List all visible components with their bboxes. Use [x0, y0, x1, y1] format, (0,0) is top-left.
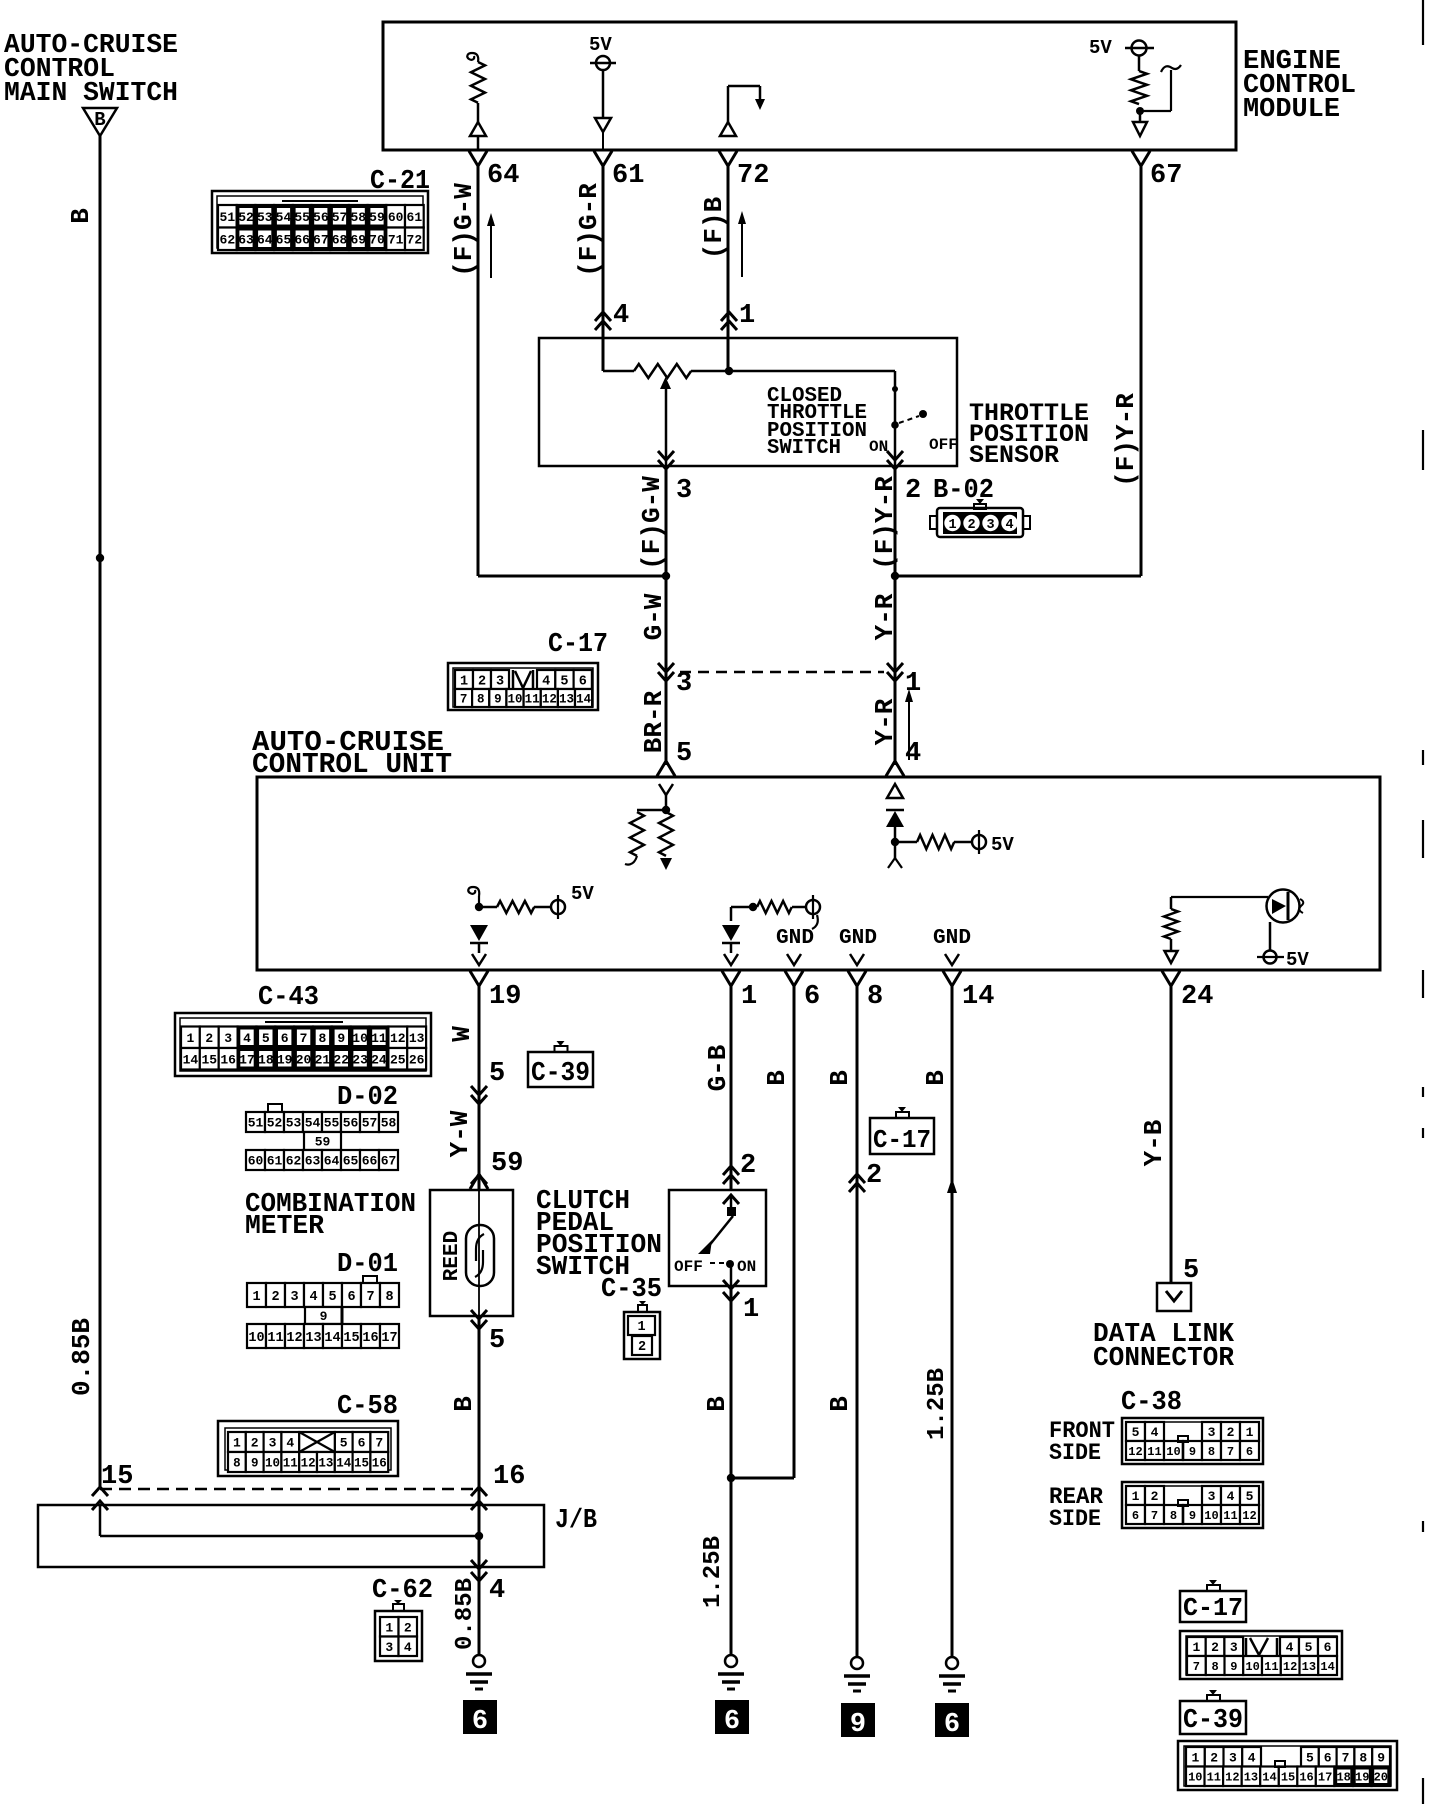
- svg-text:13: 13: [305, 1331, 321, 1346]
- svg-text:59: 59: [491, 1149, 523, 1179]
- svg-text:B: B: [762, 1070, 792, 1086]
- svg-text:11: 11: [267, 1331, 283, 1346]
- svg-text:23: 23: [352, 1052, 368, 1067]
- svg-text:72: 72: [737, 161, 769, 191]
- svg-text:6: 6: [1132, 1509, 1139, 1523]
- svg-text:9: 9: [320, 1309, 328, 1324]
- svg-text:5: 5: [1246, 1489, 1254, 1504]
- svg-text:1: 1: [252, 1290, 260, 1305]
- svg-text:C-17: C-17: [548, 630, 608, 660]
- svg-text:2: 2: [478, 674, 486, 689]
- svg-text:65: 65: [276, 232, 292, 247]
- svg-text:12: 12: [542, 693, 557, 707]
- svg-text:1.25B: 1.25B: [700, 1536, 727, 1608]
- svg-text:1: 1: [743, 1295, 759, 1325]
- svg-text:54: 54: [305, 1116, 321, 1131]
- svg-text:6: 6: [1246, 1445, 1253, 1459]
- svg-text:21: 21: [315, 1052, 331, 1067]
- svg-text:C-39: C-39: [1183, 1706, 1243, 1736]
- svg-text:1.25B: 1.25B: [924, 1368, 951, 1440]
- svg-text:7: 7: [300, 1031, 308, 1046]
- svg-text:58: 58: [350, 210, 366, 225]
- svg-text:65: 65: [343, 1154, 359, 1169]
- svg-text:61: 61: [267, 1154, 283, 1169]
- svg-text:6: 6: [358, 1436, 366, 1451]
- svg-text:2: 2: [1211, 1640, 1219, 1655]
- svg-text:B: B: [94, 109, 105, 131]
- svg-text:63: 63: [238, 232, 254, 247]
- svg-text:7: 7: [1342, 1750, 1350, 1765]
- svg-text:C-62: C-62: [372, 1576, 433, 1606]
- svg-text:13: 13: [409, 1031, 425, 1046]
- svg-text:3: 3: [224, 1031, 232, 1046]
- svg-text:J/B: J/B: [555, 1506, 597, 1536]
- svg-text:3: 3: [290, 1290, 298, 1305]
- svg-text:3: 3: [676, 669, 692, 699]
- svg-text:4: 4: [905, 739, 921, 769]
- svg-text:5: 5: [1306, 1750, 1314, 1765]
- svg-text:Y-B: Y-B: [1139, 1119, 1169, 1166]
- svg-text:1: 1: [233, 1436, 241, 1451]
- svg-text:ON: ON: [737, 1258, 756, 1276]
- svg-text:55: 55: [324, 1116, 340, 1131]
- svg-text:12: 12: [1283, 1660, 1297, 1674]
- svg-text:8: 8: [233, 1457, 241, 1471]
- svg-text:53: 53: [257, 210, 273, 225]
- svg-text:0.85B: 0.85B: [452, 1578, 479, 1650]
- svg-text:5: 5: [262, 1031, 270, 1046]
- svg-text:8: 8: [318, 1031, 326, 1046]
- svg-text:12: 12: [1242, 1509, 1256, 1523]
- svg-text:18: 18: [258, 1052, 274, 1067]
- svg-text:2: 2: [638, 1340, 646, 1355]
- svg-text:12: 12: [390, 1031, 406, 1046]
- svg-text:14: 14: [1320, 1660, 1334, 1674]
- svg-text:8: 8: [1170, 1509, 1177, 1523]
- svg-text:2: 2: [1210, 1750, 1218, 1765]
- svg-text:6: 6: [281, 1031, 289, 1046]
- svg-text:GND: GND: [776, 927, 814, 950]
- svg-text:(F)G-R: (F)G-R: [574, 183, 604, 277]
- svg-text:(F)G-W: (F)G-W: [637, 476, 667, 570]
- svg-text:4: 4: [1227, 1489, 1235, 1504]
- svg-text:C-39: C-39: [531, 1059, 590, 1089]
- svg-text:16: 16: [220, 1052, 236, 1067]
- svg-text:14: 14: [576, 693, 592, 707]
- svg-text:56: 56: [343, 1116, 359, 1131]
- svg-text:64: 64: [324, 1154, 340, 1169]
- svg-text:25: 25: [390, 1052, 406, 1067]
- svg-text:4: 4: [542, 674, 550, 689]
- svg-text:15: 15: [101, 1462, 133, 1492]
- svg-text:B: B: [66, 208, 96, 224]
- svg-text:61: 61: [612, 161, 644, 191]
- svg-text:7: 7: [460, 693, 468, 707]
- svg-text:9: 9: [251, 1457, 259, 1471]
- svg-text:67: 67: [381, 1154, 397, 1169]
- svg-text:3: 3: [1230, 1640, 1238, 1655]
- svg-text:20: 20: [1374, 1771, 1388, 1785]
- svg-text:6: 6: [1324, 1750, 1332, 1765]
- svg-text:6: 6: [944, 1710, 960, 1740]
- svg-text:3: 3: [1208, 1425, 1216, 1440]
- svg-text:60: 60: [248, 1154, 264, 1169]
- svg-text:3: 3: [676, 476, 692, 506]
- svg-text:G-B: G-B: [703, 1044, 733, 1091]
- svg-text:D-02: D-02: [337, 1083, 398, 1113]
- svg-text:B: B: [449, 1396, 479, 1412]
- svg-text:59: 59: [369, 210, 385, 225]
- svg-text:20: 20: [296, 1052, 312, 1067]
- svg-text:CONNECTOR: CONNECTOR: [1093, 1344, 1235, 1374]
- svg-text:G-W: G-W: [639, 593, 669, 640]
- svg-text:B: B: [825, 1396, 855, 1412]
- svg-text:14: 14: [324, 1331, 340, 1346]
- svg-text:5V: 5V: [589, 34, 612, 56]
- svg-text:9: 9: [337, 1031, 345, 1046]
- svg-text:55: 55: [294, 210, 310, 225]
- svg-text:2: 2: [740, 1151, 756, 1181]
- svg-text:2: 2: [251, 1436, 259, 1451]
- svg-text:11: 11: [283, 1457, 298, 1471]
- svg-text:5: 5: [489, 1059, 505, 1089]
- svg-text:3: 3: [385, 1640, 393, 1655]
- svg-text:(F)B: (F)B: [699, 196, 729, 259]
- svg-text:B: B: [702, 1396, 732, 1412]
- svg-text:15: 15: [354, 1457, 369, 1471]
- svg-text:B-02: B-02: [933, 476, 994, 506]
- svg-text:4: 4: [286, 1436, 294, 1451]
- svg-text:24: 24: [1181, 982, 1213, 1012]
- svg-text:72: 72: [407, 232, 423, 247]
- svg-text:8: 8: [867, 982, 883, 1012]
- svg-text:Y-W: Y-W: [445, 1110, 475, 1157]
- svg-text:8: 8: [1212, 1660, 1219, 1674]
- svg-text:0.85B: 0.85B: [67, 1318, 97, 1396]
- svg-text:9: 9: [1377, 1750, 1385, 1765]
- svg-text:62: 62: [220, 232, 236, 247]
- svg-text:2: 2: [1151, 1489, 1159, 1504]
- svg-text:67: 67: [1150, 161, 1182, 191]
- svg-text:SIDE: SIDE: [1049, 1440, 1101, 1466]
- svg-text:C-43: C-43: [258, 983, 319, 1013]
- svg-text:5: 5: [328, 1290, 336, 1305]
- svg-text:1: 1: [739, 301, 755, 331]
- svg-text:6: 6: [579, 674, 587, 689]
- svg-text:OFF: OFF: [674, 1258, 703, 1276]
- svg-text:18: 18: [1336, 1771, 1350, 1785]
- svg-text:4: 4: [243, 1031, 251, 1046]
- svg-text:10: 10: [248, 1331, 264, 1346]
- svg-text:6: 6: [1324, 1640, 1332, 1655]
- svg-text:15: 15: [201, 1052, 217, 1067]
- svg-text:SENSOR: SENSOR: [969, 441, 1059, 470]
- svg-text:(F)Y-R: (F)Y-R: [1111, 393, 1141, 487]
- svg-text:5: 5: [489, 1326, 505, 1356]
- svg-text:2: 2: [905, 476, 921, 506]
- svg-text:13: 13: [1302, 1660, 1316, 1674]
- svg-text:B: B: [825, 1070, 855, 1086]
- svg-text:2: 2: [967, 518, 975, 533]
- svg-text:69: 69: [350, 232, 366, 247]
- svg-text:2: 2: [271, 1290, 279, 1305]
- svg-text:7: 7: [1193, 1660, 1200, 1674]
- svg-text:4: 4: [1151, 1425, 1159, 1440]
- svg-text:7: 7: [1227, 1445, 1234, 1459]
- svg-text:1: 1: [1192, 1640, 1200, 1655]
- svg-text:GND: GND: [839, 927, 877, 950]
- svg-text:17: 17: [239, 1052, 255, 1067]
- svg-text:C-58: C-58: [337, 1392, 398, 1422]
- svg-text:8: 8: [385, 1290, 393, 1305]
- svg-text:57: 57: [332, 210, 348, 225]
- svg-text:GND: GND: [933, 927, 971, 950]
- svg-text:19: 19: [489, 982, 521, 1012]
- svg-text:1: 1: [187, 1031, 195, 1046]
- svg-text:11: 11: [1147, 1445, 1161, 1459]
- svg-text:REED: REED: [441, 1231, 464, 1281]
- svg-text:8: 8: [477, 693, 485, 707]
- svg-text:9: 9: [1189, 1509, 1196, 1523]
- svg-text:58: 58: [381, 1116, 397, 1131]
- svg-text:8: 8: [1359, 1750, 1367, 1765]
- svg-text:57: 57: [362, 1116, 378, 1131]
- svg-text:59: 59: [315, 1135, 331, 1150]
- svg-text:12: 12: [286, 1331, 302, 1346]
- svg-text:5: 5: [340, 1436, 348, 1451]
- svg-text:1: 1: [385, 1620, 393, 1635]
- svg-text:26: 26: [409, 1052, 425, 1067]
- svg-text:2: 2: [1227, 1425, 1235, 1440]
- svg-text:11: 11: [371, 1031, 387, 1046]
- svg-text:64: 64: [257, 232, 273, 247]
- svg-text:56: 56: [313, 210, 329, 225]
- svg-text:ON: ON: [869, 438, 888, 456]
- svg-text:60: 60: [388, 210, 404, 225]
- svg-text:4: 4: [1286, 1640, 1294, 1655]
- svg-text:3: 3: [269, 1436, 277, 1451]
- svg-text:9: 9: [1189, 1445, 1196, 1459]
- svg-text:MAIN SWITCH: MAIN SWITCH: [4, 79, 178, 109]
- svg-text:SIDE: SIDE: [1049, 1506, 1101, 1532]
- svg-text:W: W: [447, 1026, 477, 1042]
- svg-text:66: 66: [294, 232, 310, 247]
- svg-text:C-21: C-21: [370, 167, 430, 197]
- svg-text:14: 14: [336, 1457, 352, 1471]
- svg-text:9: 9: [1230, 1660, 1237, 1674]
- svg-text:52: 52: [267, 1116, 283, 1131]
- svg-text:11: 11: [1223, 1509, 1237, 1523]
- svg-text:54: 54: [276, 210, 292, 225]
- svg-text:3: 3: [986, 518, 994, 533]
- svg-text:14: 14: [183, 1052, 199, 1067]
- svg-text:10: 10: [1188, 1771, 1202, 1785]
- svg-text:16: 16: [1299, 1771, 1313, 1785]
- svg-text:3: 3: [1229, 1750, 1237, 1765]
- svg-text:4: 4: [613, 301, 629, 331]
- svg-text:5V: 5V: [571, 883, 594, 905]
- svg-text:71: 71: [388, 232, 404, 247]
- svg-text:15: 15: [343, 1331, 359, 1346]
- svg-text:1: 1: [948, 518, 956, 533]
- svg-text:MODULE: MODULE: [1243, 95, 1340, 125]
- svg-text:17: 17: [381, 1331, 397, 1346]
- svg-text:C-17: C-17: [1183, 1593, 1243, 1623]
- svg-text:4: 4: [1005, 518, 1013, 533]
- svg-text:5: 5: [1132, 1425, 1140, 1440]
- svg-text:16: 16: [493, 1462, 525, 1492]
- svg-text:14: 14: [1262, 1771, 1276, 1785]
- svg-text:1: 1: [460, 674, 468, 689]
- svg-text:10: 10: [1166, 1445, 1180, 1459]
- svg-text:12: 12: [301, 1457, 316, 1471]
- svg-text:10: 10: [508, 693, 523, 707]
- svg-text:5V: 5V: [991, 834, 1014, 856]
- svg-text:9: 9: [850, 1710, 866, 1740]
- svg-text:10: 10: [265, 1457, 280, 1471]
- svg-text:C-38: C-38: [1121, 1388, 1182, 1418]
- svg-text:14: 14: [962, 982, 994, 1012]
- svg-text:1: 1: [1132, 1489, 1140, 1504]
- svg-text:13: 13: [559, 693, 574, 707]
- svg-text:68: 68: [332, 232, 348, 247]
- svg-text:8: 8: [1208, 1445, 1215, 1459]
- svg-text:63: 63: [305, 1154, 321, 1169]
- svg-text:5: 5: [1305, 1640, 1313, 1655]
- svg-text:52: 52: [238, 210, 254, 225]
- svg-text:6: 6: [724, 1707, 740, 1737]
- svg-text:9: 9: [494, 693, 502, 707]
- svg-text:51: 51: [220, 210, 236, 225]
- svg-text:5: 5: [1183, 1256, 1199, 1286]
- svg-text:(F)G-W: (F)G-W: [449, 183, 479, 277]
- svg-text:11: 11: [1264, 1660, 1278, 1674]
- svg-text:BR-R: BR-R: [639, 690, 669, 753]
- svg-text:1: 1: [637, 1320, 645, 1335]
- svg-text:66: 66: [362, 1154, 378, 1169]
- svg-text:19: 19: [277, 1052, 293, 1067]
- svg-text:2: 2: [404, 1620, 412, 1635]
- svg-text:10: 10: [1204, 1509, 1218, 1523]
- svg-text:62: 62: [286, 1154, 302, 1169]
- svg-text:5: 5: [560, 674, 568, 689]
- svg-text:19: 19: [1355, 1771, 1369, 1785]
- svg-text:6: 6: [804, 982, 820, 1012]
- svg-text:4: 4: [1248, 1750, 1256, 1765]
- svg-text:METER: METER: [245, 1212, 325, 1242]
- svg-text:7: 7: [366, 1290, 374, 1305]
- svg-text:67: 67: [313, 232, 329, 247]
- svg-text:10: 10: [352, 1031, 368, 1046]
- svg-text:B: B: [921, 1070, 951, 1086]
- svg-text:7: 7: [375, 1436, 383, 1451]
- svg-text:6: 6: [472, 1707, 488, 1737]
- svg-text:12: 12: [1225, 1771, 1239, 1785]
- svg-text:Y-R: Y-R: [870, 593, 900, 640]
- svg-text:1: 1: [1191, 1750, 1199, 1765]
- svg-text:2: 2: [866, 1161, 882, 1191]
- svg-text:1: 1: [1246, 1425, 1254, 1440]
- svg-text:C-35: C-35: [601, 1275, 662, 1305]
- svg-text:51: 51: [248, 1116, 264, 1131]
- svg-text:17: 17: [1318, 1771, 1332, 1785]
- svg-text:53: 53: [286, 1116, 302, 1131]
- svg-text:4: 4: [489, 1576, 505, 1606]
- svg-text:13: 13: [318, 1457, 333, 1471]
- svg-text:4: 4: [309, 1290, 317, 1305]
- svg-text:1: 1: [741, 982, 757, 1012]
- svg-text:SWITCH: SWITCH: [767, 437, 841, 460]
- svg-text:16: 16: [362, 1331, 378, 1346]
- svg-text:5: 5: [676, 739, 692, 769]
- svg-text:3: 3: [496, 674, 504, 689]
- svg-text:2: 2: [205, 1031, 213, 1046]
- svg-text:6: 6: [347, 1290, 355, 1305]
- svg-text:4: 4: [404, 1640, 412, 1655]
- svg-text:11: 11: [1207, 1771, 1221, 1785]
- svg-text:24: 24: [371, 1052, 387, 1067]
- svg-text:7: 7: [1151, 1509, 1158, 1523]
- svg-text:64: 64: [487, 161, 519, 191]
- svg-text:70: 70: [369, 232, 385, 247]
- svg-text:Y-R: Y-R: [870, 698, 900, 745]
- svg-text:61: 61: [407, 210, 423, 225]
- svg-text:11: 11: [525, 693, 540, 707]
- svg-text:3: 3: [1208, 1489, 1216, 1504]
- svg-text:22: 22: [333, 1052, 349, 1067]
- svg-text:5V: 5V: [1286, 949, 1309, 971]
- svg-text:16: 16: [372, 1457, 387, 1471]
- svg-text:12: 12: [1128, 1445, 1142, 1459]
- svg-text:C-17: C-17: [873, 1125, 931, 1155]
- svg-text:10: 10: [1245, 1660, 1259, 1674]
- svg-text:13: 13: [1244, 1771, 1258, 1785]
- svg-text:OFF: OFF: [929, 436, 958, 454]
- svg-text:15: 15: [1281, 1771, 1295, 1785]
- svg-text:5V: 5V: [1089, 37, 1112, 59]
